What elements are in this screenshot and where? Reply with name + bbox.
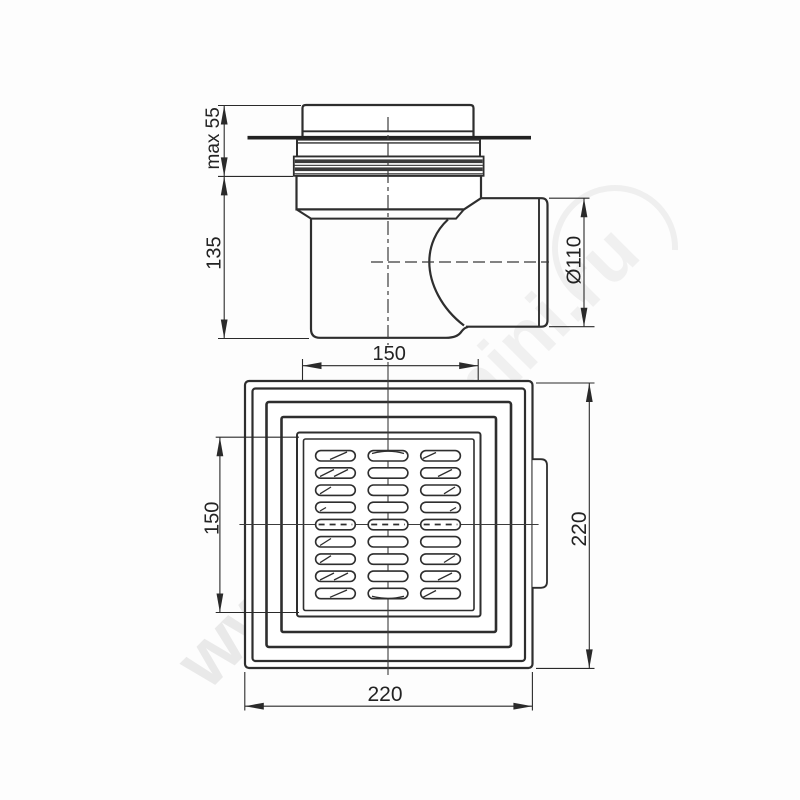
svg-text:135: 135 (204, 236, 226, 269)
svg-text:150: 150 (202, 502, 224, 535)
svg-text:150: 150 (373, 343, 406, 365)
svg-text:220: 220 (368, 683, 403, 706)
svg-text:max 55: max 55 (203, 107, 224, 169)
svg-text:220: 220 (568, 511, 591, 546)
svg-text:Ø110: Ø110 (563, 236, 586, 285)
